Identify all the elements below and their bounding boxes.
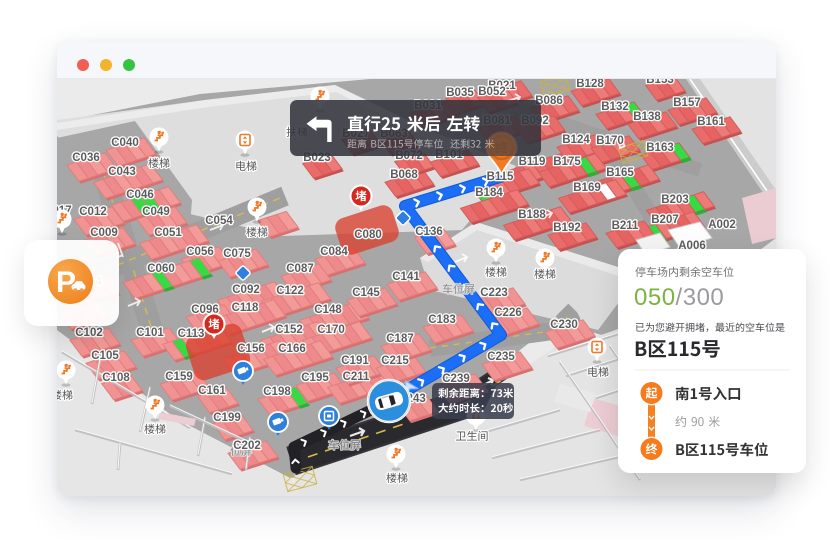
svg-text:A002: A002 bbox=[708, 219, 736, 231]
svg-text:C108: C108 bbox=[102, 372, 130, 384]
svg-text:C183: C183 bbox=[428, 314, 456, 326]
svg-text:C049: C049 bbox=[142, 206, 170, 218]
svg-text:C051: C051 bbox=[154, 227, 182, 239]
svg-text:C141: C141 bbox=[392, 271, 420, 283]
svg-text:C040: C040 bbox=[111, 137, 139, 149]
svg-text:P: P bbox=[56, 266, 76, 299]
svg-text:C043: C043 bbox=[108, 166, 136, 178]
svg-text:C092: C092 bbox=[232, 284, 260, 296]
svg-text:C148: C148 bbox=[314, 304, 342, 316]
svg-text:C161: C161 bbox=[198, 385, 226, 397]
svg-text:C009: C009 bbox=[90, 227, 118, 239]
svg-text:C199: C199 bbox=[213, 412, 241, 424]
svg-text:050/300: 050/300 bbox=[634, 284, 724, 311]
svg-text:C136: C136 bbox=[415, 226, 443, 238]
svg-text:B132: B132 bbox=[601, 101, 629, 113]
svg-text:B184: B184 bbox=[475, 187, 503, 199]
svg-text:C054: C054 bbox=[205, 215, 233, 227]
svg-text:C084: C084 bbox=[320, 246, 348, 258]
svg-text:C102: C102 bbox=[75, 327, 103, 339]
svg-text:C230: C230 bbox=[550, 319, 578, 331]
svg-text:C122: C122 bbox=[276, 285, 304, 297]
svg-text:C166: C166 bbox=[278, 343, 306, 355]
svg-text:C215: C215 bbox=[381, 355, 409, 367]
svg-text:C145: C145 bbox=[352, 287, 380, 299]
svg-text:C195: C195 bbox=[301, 372, 329, 384]
svg-text:B138: B138 bbox=[633, 111, 661, 123]
svg-text:C159: C159 bbox=[165, 371, 193, 383]
svg-text:C036: C036 bbox=[72, 152, 100, 164]
svg-text:C046: C046 bbox=[126, 189, 154, 201]
svg-text:B119: B119 bbox=[519, 156, 546, 168]
svg-text:C152: C152 bbox=[275, 324, 303, 336]
svg-text:C075: C075 bbox=[223, 248, 251, 260]
svg-text:C056: C056 bbox=[186, 246, 214, 258]
svg-text:B068: B068 bbox=[390, 169, 418, 181]
svg-text:C187: C187 bbox=[386, 333, 414, 345]
svg-text:B192: B192 bbox=[553, 222, 581, 234]
svg-text:C211: C211 bbox=[343, 371, 370, 383]
svg-text:C202: C202 bbox=[233, 440, 261, 452]
svg-text:B188: B188 bbox=[518, 209, 546, 221]
svg-text:B175: B175 bbox=[553, 156, 581, 168]
svg-text:B207: B207 bbox=[651, 214, 679, 226]
svg-text:C156: C156 bbox=[237, 343, 265, 355]
svg-text:C118: C118 bbox=[232, 302, 259, 314]
svg-text:C105: C105 bbox=[91, 350, 119, 362]
svg-text:C113: C113 bbox=[178, 328, 205, 340]
svg-text:C060: C060 bbox=[147, 263, 175, 275]
svg-text:C191: C191 bbox=[341, 355, 369, 367]
svg-text:B124: B124 bbox=[562, 134, 590, 146]
svg-text:B163: B163 bbox=[646, 142, 674, 154]
svg-text:C080: C080 bbox=[354, 229, 382, 241]
svg-text:C235: C235 bbox=[487, 351, 515, 363]
svg-text:B153: B153 bbox=[646, 79, 674, 86]
svg-text:C226: C226 bbox=[494, 307, 522, 319]
svg-text:C223: C223 bbox=[480, 287, 508, 299]
svg-text:B165: B165 bbox=[606, 167, 634, 179]
svg-text:B203: B203 bbox=[661, 194, 689, 206]
svg-text:B161: B161 bbox=[697, 116, 725, 128]
svg-text:C087: C087 bbox=[286, 263, 314, 275]
svg-text:C170: C170 bbox=[317, 324, 345, 336]
svg-text:B128: B128 bbox=[576, 79, 604, 90]
svg-text:C101: C101 bbox=[136, 327, 164, 339]
svg-text:B157: B157 bbox=[673, 97, 701, 109]
svg-text:B035: B035 bbox=[446, 87, 474, 99]
svg-text:B211: B211 bbox=[612, 220, 639, 232]
svg-text:B170: B170 bbox=[596, 135, 624, 147]
svg-text:C012: C012 bbox=[79, 206, 107, 218]
svg-text:B169: B169 bbox=[573, 182, 601, 194]
svg-text:B052: B052 bbox=[478, 86, 506, 98]
svg-text:C198: C198 bbox=[263, 386, 291, 398]
